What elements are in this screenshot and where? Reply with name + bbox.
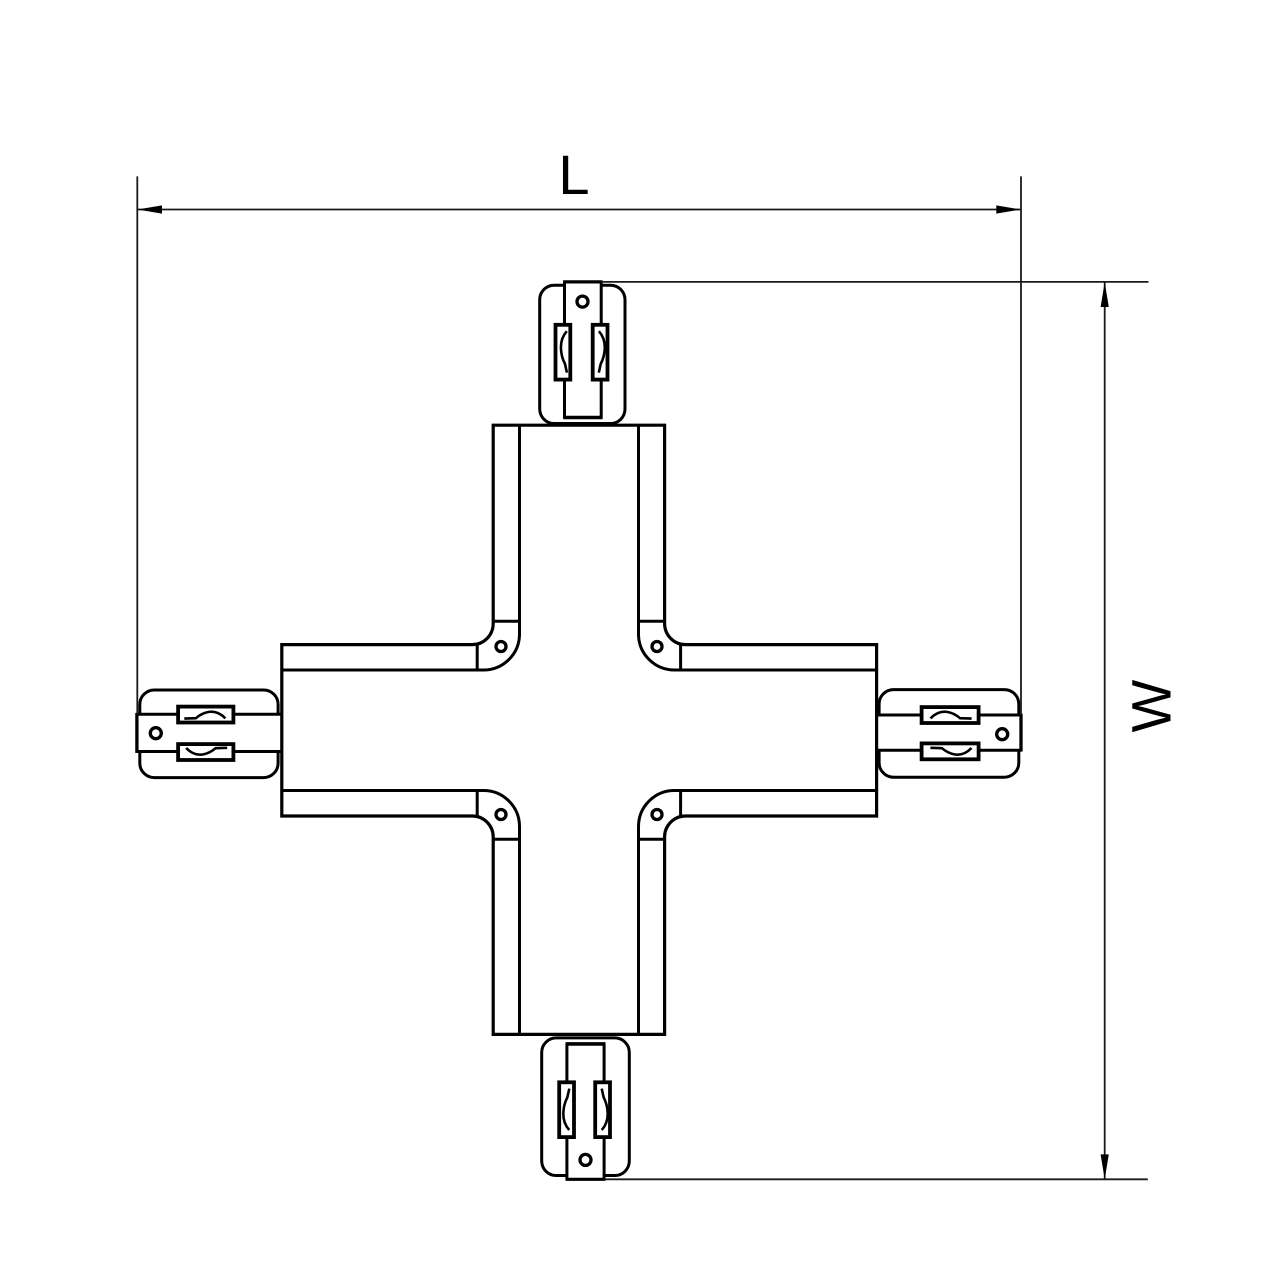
- svg-text:W: W: [1120, 680, 1183, 733]
- svg-text:L: L: [558, 143, 589, 206]
